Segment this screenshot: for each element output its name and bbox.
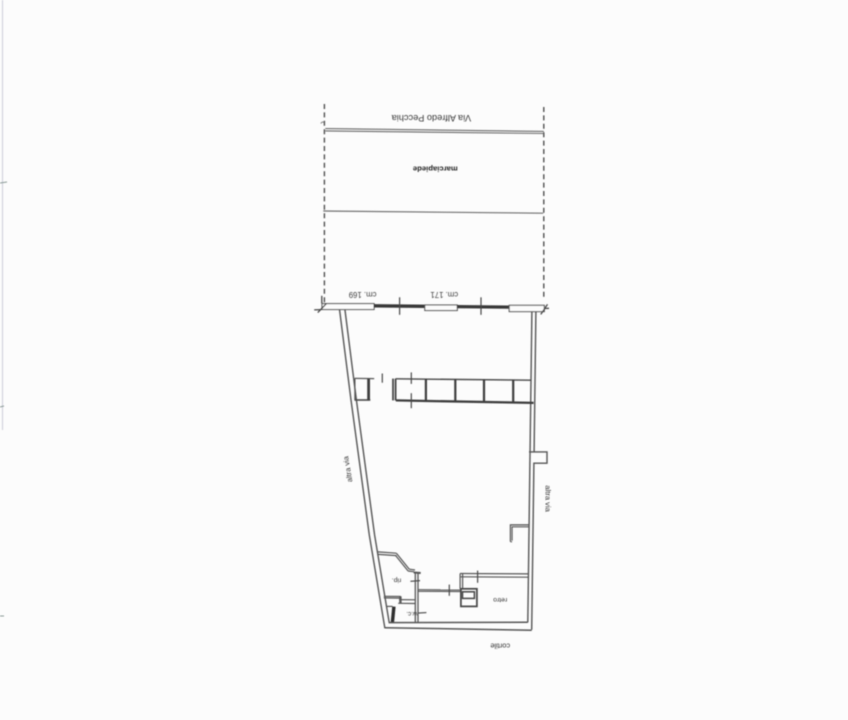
svg-text:altra via: altra via <box>544 485 553 512</box>
svg-text:marciapiede: marciapiede <box>412 164 458 173</box>
svg-text:rip.: rip. <box>392 577 402 584</box>
svg-text:cm. 169: cm. 169 <box>349 290 377 299</box>
svg-text:w.c.: w.c. <box>406 610 418 617</box>
svg-text:Via Alfredo Pecchia: Via Alfredo Pecchia <box>391 113 471 123</box>
svg-text:cortile: cortile <box>490 642 510 651</box>
svg-text:cm. 171: cm. 171 <box>430 290 458 299</box>
svg-text:retro: retro <box>493 596 507 603</box>
